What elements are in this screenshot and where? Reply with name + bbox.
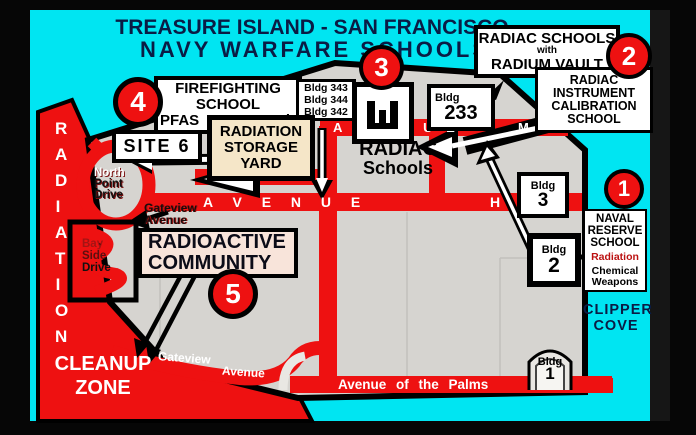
gateview-upper-l2: Avenue bbox=[144, 214, 197, 226]
gateview-upper-label: Gateview Avenue bbox=[144, 202, 197, 226]
bldg233-num: 233 bbox=[431, 104, 491, 122]
map-title-line2: NAVY WARFARE SCHOOLS bbox=[120, 37, 510, 63]
radiation-vertical-label: RADIATION bbox=[55, 116, 69, 350]
bldg-343: Bldg 343 bbox=[299, 82, 353, 94]
marker-5: 5 bbox=[208, 269, 258, 319]
storage-l1: RADIATION bbox=[212, 124, 310, 140]
radioactive-community-box: RADIOACTIVE COMMUNITY bbox=[138, 228, 298, 278]
firefighting-l2: SCHOOL bbox=[158, 97, 298, 113]
bldg-3-box: Bldg 3 bbox=[517, 172, 569, 218]
marker-4: 4 bbox=[113, 77, 163, 127]
instrument-l4: SCHOOL bbox=[538, 113, 650, 126]
bldg-1-label: Bldg 1 bbox=[528, 356, 572, 380]
radiac-building-box bbox=[352, 82, 414, 144]
naval-l2: RESERVE bbox=[585, 225, 645, 237]
road-cove-stub bbox=[585, 378, 613, 393]
avenue-palms-label: Avenue of the Palms bbox=[338, 377, 488, 392]
naval-weapons: Weapons bbox=[585, 277, 645, 288]
avenue-h-letter: H bbox=[490, 194, 500, 210]
north-point-spur bbox=[92, 142, 100, 150]
clipper-l2: COVE bbox=[583, 318, 649, 334]
north-point-l3: Drive bbox=[94, 190, 125, 201]
bldg-344: Bldg 344 bbox=[299, 94, 353, 106]
bldg1-num: 1 bbox=[528, 368, 572, 380]
radiac-schools-label: RADIAC Schools bbox=[348, 140, 448, 178]
clipper-l1: CLIPPER bbox=[583, 302, 649, 318]
radiac-l1: RADIAC bbox=[348, 140, 448, 159]
cleanup-label: CLEANUP bbox=[38, 353, 168, 376]
north-point-drive-label: North Point Drive bbox=[94, 168, 125, 201]
bay-side-l1: Bay bbox=[82, 238, 111, 250]
storage-l2: STORAGE bbox=[212, 140, 310, 156]
bay-side-l3: Drive bbox=[82, 262, 111, 274]
zone-label: ZONE bbox=[38, 377, 168, 400]
bldg-233-box: Bldg 233 bbox=[427, 84, 495, 131]
naval-l3: SCHOOL bbox=[585, 237, 645, 249]
castle-building-icon bbox=[365, 95, 401, 131]
bay-side-l2: Side bbox=[82, 250, 111, 262]
firefighting-pfas: PFAS bbox=[160, 113, 199, 129]
marker-1: 1 bbox=[604, 169, 644, 209]
treasure-island-map: TREASURE ISLAND - SAN FRANCISCO NAVY WAR… bbox=[0, 0, 696, 435]
site6-label: SITE 6 bbox=[116, 137, 198, 156]
gateview-road-label2: Avenue bbox=[222, 364, 266, 381]
avenue-h-label: A V E N U E bbox=[203, 194, 368, 210]
clipper-cove-label: CLIPPER COVE bbox=[583, 302, 649, 334]
radium-vault-l1: RADIAC SCHOOLS bbox=[478, 31, 616, 47]
bay-side-drive-label: Bay Side Drive bbox=[82, 238, 111, 274]
bldg-2-box: Bldg 2 bbox=[527, 233, 581, 287]
avenue-m-letter: M bbox=[518, 120, 529, 135]
naval-reserve-box: NAVAL RESERVE SCHOOL Radiation Chemical … bbox=[583, 209, 647, 292]
community-l1: RADIOACTIVE bbox=[148, 232, 294, 253]
radiation-storage-yard-box: RADIATION STORAGE YARD bbox=[207, 115, 315, 181]
marker-2: 2 bbox=[606, 33, 652, 79]
storage-l3: YARD bbox=[212, 156, 310, 172]
naval-l1: NAVAL bbox=[585, 213, 645, 225]
radiac-l2: Schools bbox=[348, 159, 448, 178]
bldg3-num: 3 bbox=[521, 192, 565, 209]
marker-3: 3 bbox=[359, 45, 404, 90]
bldg2-num: 2 bbox=[533, 257, 575, 275]
firefighting-l1: FIREFIGHTING bbox=[158, 81, 298, 97]
naval-radiation: Radiation bbox=[585, 252, 645, 263]
site-6-box: SITE 6 bbox=[112, 130, 202, 163]
